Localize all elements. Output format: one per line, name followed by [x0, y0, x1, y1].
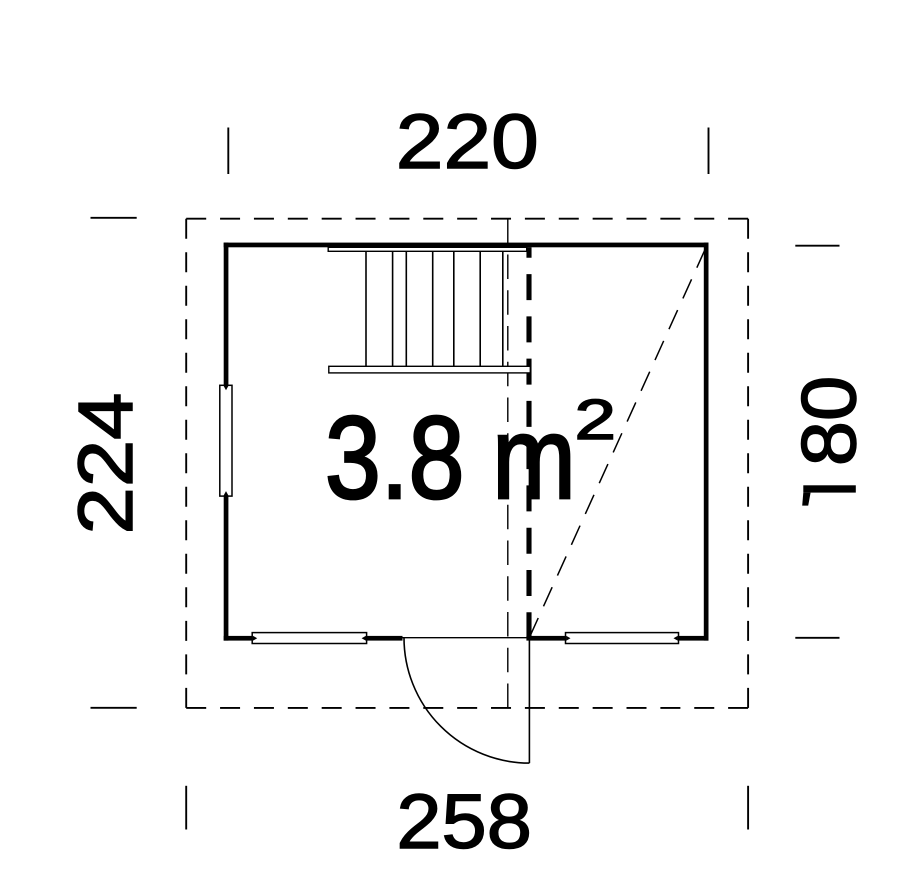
svg-text:3.8 m: 3.8 m [325, 392, 576, 523]
svg-text:80: 80 [787, 376, 873, 467]
svg-text:220: 220 [396, 99, 539, 185]
svg-text:2: 2 [575, 388, 617, 452]
svg-text:224: 224 [63, 393, 149, 535]
svg-text:258: 258 [396, 779, 532, 865]
